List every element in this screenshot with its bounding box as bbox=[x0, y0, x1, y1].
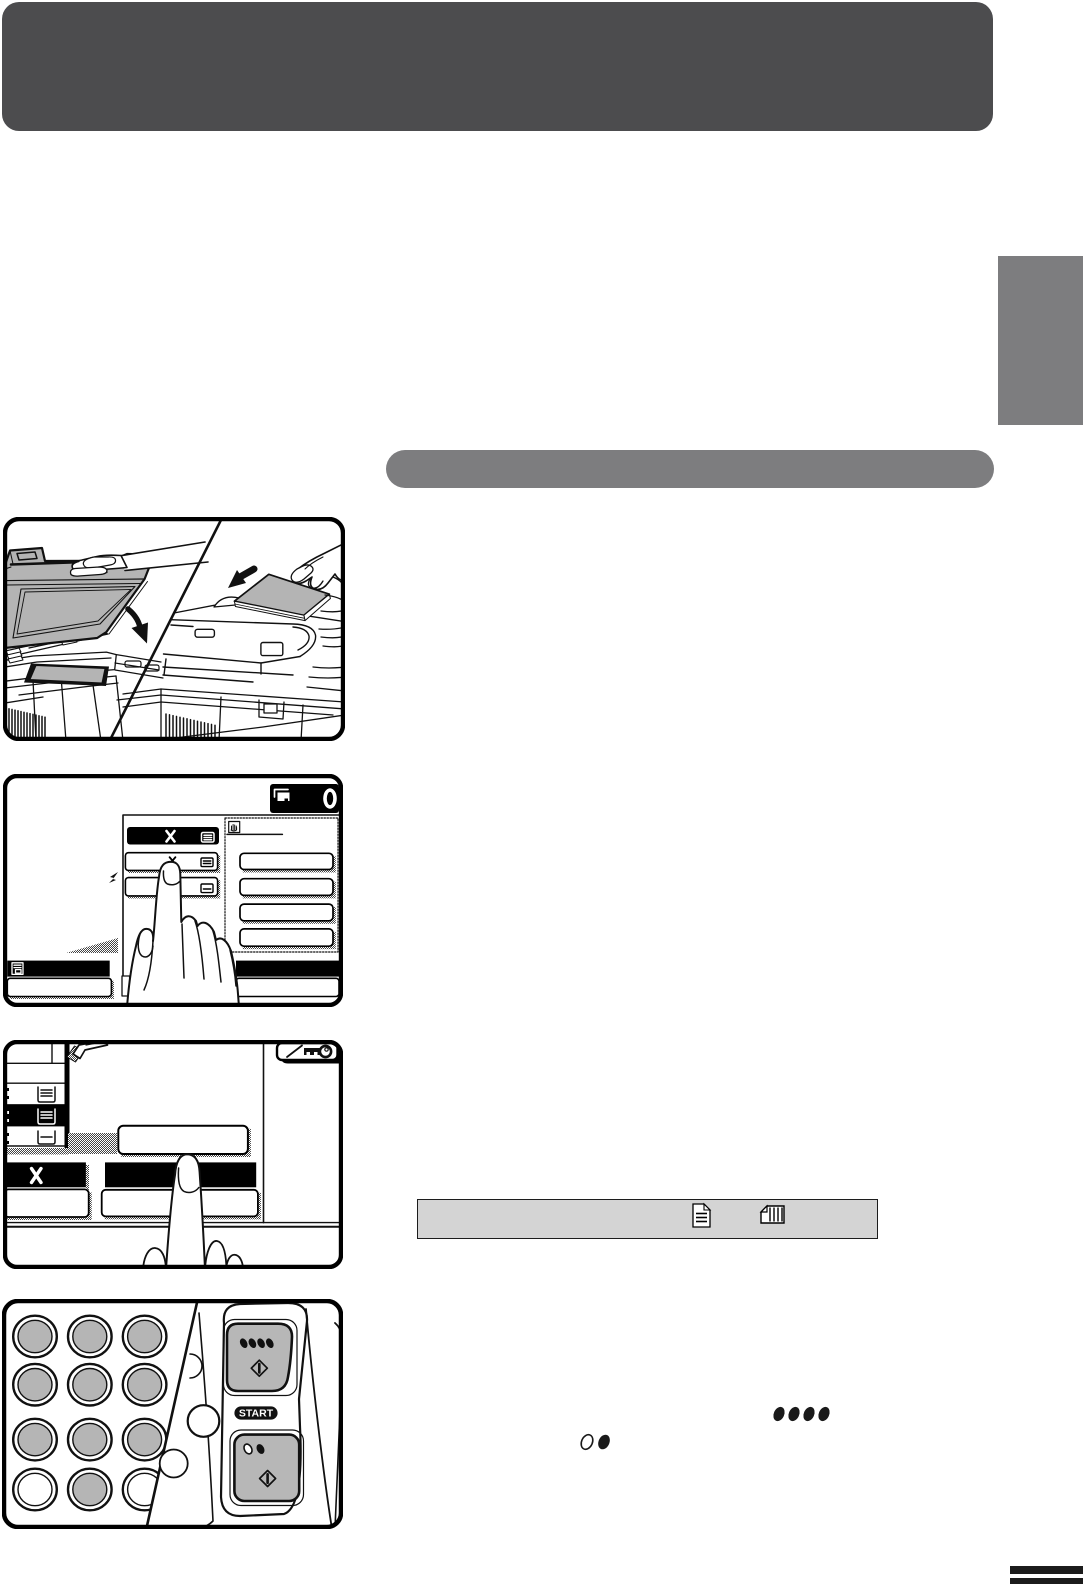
svg-text:START: START bbox=[239, 1408, 274, 1420]
